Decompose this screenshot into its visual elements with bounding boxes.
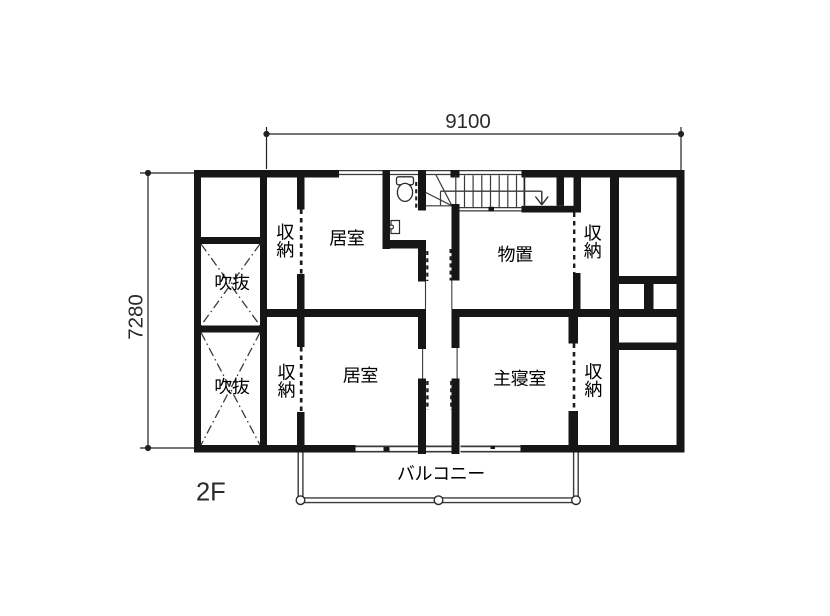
svg-text:2F: 2F	[196, 479, 226, 507]
svg-text:7280: 7280	[125, 294, 148, 340]
svg-text:9100: 9100	[445, 110, 491, 133]
